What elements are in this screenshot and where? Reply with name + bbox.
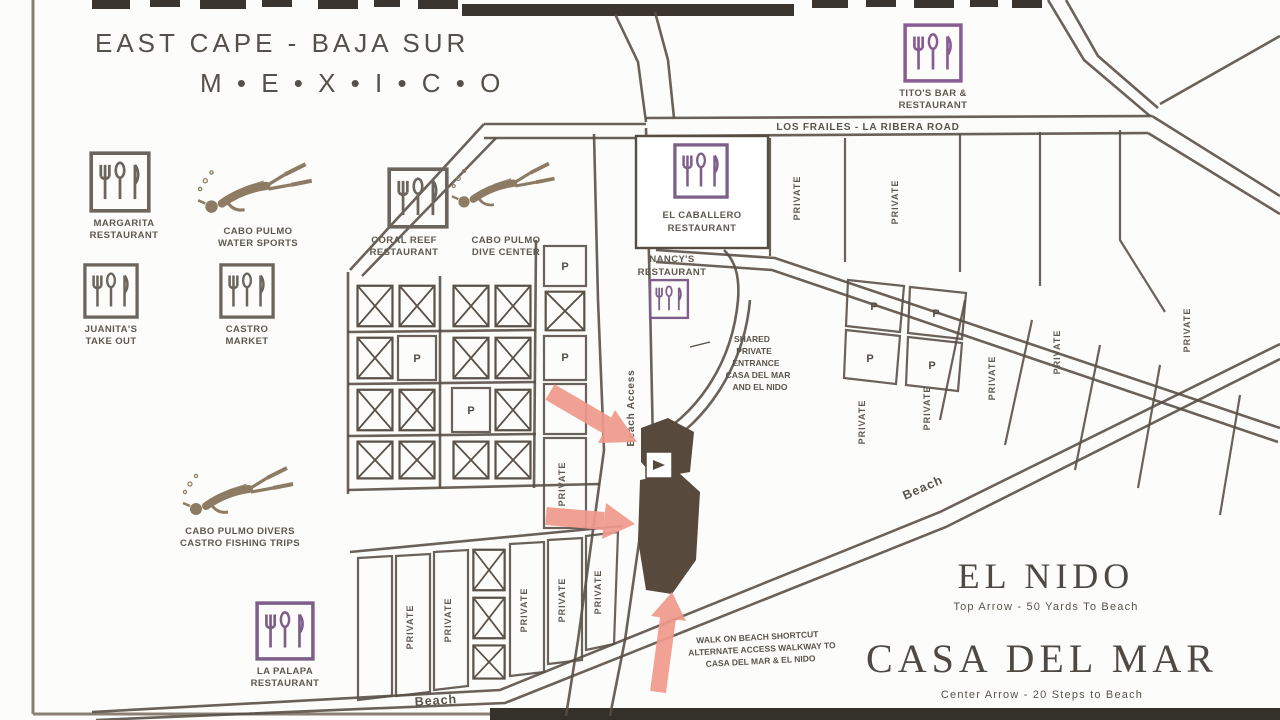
- lot-marker-p: P: [467, 405, 474, 417]
- house-buildings: [638, 418, 700, 594]
- map-title-line1: EAST CAPE - BAJA SUR: [95, 28, 469, 58]
- poi-la-palapa-restaurant: LA PALAPA RESTAURANT: [251, 603, 320, 689]
- poi-label: EL CABALLERO: [662, 210, 741, 221]
- poi-el-caballero-restaurant: EL CABALLERO RESTAURANT: [636, 136, 768, 248]
- lot-label-private: PRIVATE: [557, 462, 567, 507]
- poi-label: RESTAURANT: [638, 267, 707, 278]
- poi-label: CABO PULMO DIVERS: [185, 526, 295, 537]
- lot-marker-p: P: [413, 353, 420, 365]
- lot-block-east: P P P P PRIVATE PRIVATE PRIVATE PRIVATE …: [770, 130, 1240, 515]
- restaurant-icon: [257, 603, 313, 659]
- road-label-los-frailes: LOS FRAILES - LA RIBERA ROAD: [776, 122, 959, 133]
- restaurant-icon-small: [650, 280, 688, 318]
- lot-label-private: PRIVATE: [1052, 330, 1062, 375]
- arrow-center-casa-del-mar: [546, 503, 635, 539]
- poi-margarita-restaurant: MARGARITA RESTAURANT: [90, 153, 159, 241]
- scuba-diver-icon: [198, 164, 312, 213]
- note-line: AND EL NIDO: [732, 382, 787, 392]
- poi-label: RESTAURANT: [90, 230, 159, 241]
- lot-label-private: PRIVATE: [890, 180, 900, 225]
- map-title: EAST CAPE - BAJA SUR M • E • X • I • C •…: [95, 28, 504, 98]
- poi-label: JUANITA'S: [85, 324, 138, 335]
- lot-marker-p: P: [932, 308, 939, 320]
- el-nido-name: EL NIDO: [958, 556, 1135, 596]
- el-nido-label-block: EL NIDO Top Arrow - 50 Yards To Beach: [953, 556, 1138, 613]
- poi-label: TAKE OUT: [85, 336, 136, 347]
- note-line: SHARED: [734, 334, 770, 344]
- restaurant-icon: [905, 25, 961, 81]
- lot-label-private: PRIVATE: [557, 578, 567, 623]
- cutoff-title-art: [92, 0, 1042, 16]
- poi-label: CASTRO: [226, 324, 269, 335]
- poi-label: CASTRO FISHING TRIPS: [180, 538, 300, 549]
- lot-marker-p: P: [870, 301, 877, 313]
- poi-label: DIVE CENTER: [472, 247, 540, 258]
- poi-label: CORAL REEF: [371, 235, 437, 246]
- lot-label-private: PRIVATE: [405, 605, 415, 650]
- lot-label-private: PRIVATE: [443, 598, 453, 643]
- east-cape-map: P P P P PRIVATE PRIVATE PRIVATE PRIVATE …: [0, 0, 1280, 720]
- poi-label: MARKET: [225, 336, 268, 347]
- map-title-line2: M • E • X • I • C • O: [200, 68, 504, 98]
- road-label-beach-bottom: Beach: [414, 692, 457, 709]
- note-line: CASA DEL MAR: [726, 370, 791, 380]
- market-icon: [221, 265, 273, 317]
- poi-label: RESTAURANT: [668, 223, 737, 234]
- lot-label-private: PRIVATE: [792, 176, 802, 221]
- note-line: PRIVATE: [736, 346, 772, 356]
- poi-label: MARGARITA: [94, 218, 155, 229]
- lot-marker-p: P: [561, 352, 568, 364]
- restaurant-icon: [91, 153, 149, 211]
- poi-label: RESTAURANT: [251, 678, 320, 689]
- lot-label-private: PRIVATE: [1182, 308, 1192, 353]
- restaurant-icon: [85, 265, 137, 317]
- lot-label-private: PRIVATE: [519, 588, 529, 633]
- poi-coral-reef-restaurant: CORAL REEF RESTAURANT: [370, 169, 447, 258]
- note-shared-driveway: SHARED PRIVATE ENTRANCE CASA DEL MAR AND…: [690, 334, 790, 392]
- poi-label: WATER SPORTS: [218, 238, 298, 249]
- el-nido-subtitle: Top Arrow - 50 Yards To Beach: [953, 601, 1138, 613]
- casa-del-mar-subtitle: Center Arrow - 20 Steps to Beach: [941, 689, 1143, 701]
- poi-titos-bar-restaurant: TITO'S BAR & RESTAURANT: [899, 25, 968, 111]
- note-beach-walk: WALK ON BEACH SHORTCUT ALTERNATE ACCESS …: [687, 628, 836, 670]
- note-line: ENTRANCE: [732, 358, 780, 368]
- lot-marker-p: P: [866, 353, 873, 365]
- scuba-diver-icon: [183, 468, 293, 515]
- casa-del-mar-name: CASA DEL MAR: [866, 636, 1218, 681]
- road-label-beach-right: Beach: [901, 473, 946, 503]
- arrow-top-el-nido: [550, 392, 637, 443]
- lot-marker-p: P: [561, 261, 568, 273]
- poi-label: RESTAURANT: [370, 247, 439, 258]
- poi-label: NANCY'S: [649, 254, 694, 265]
- poi-castro-market: CASTRO MARKET: [221, 265, 273, 347]
- lot-marker-p: P: [928, 360, 935, 372]
- poi-label: CABO PULMO: [472, 235, 541, 246]
- lot-label-private: PRIVATE: [922, 386, 932, 431]
- lot-label-private: PRIVATE: [987, 356, 997, 401]
- casa-del-mar-label-block: CASA DEL MAR Center Arrow - 20 Steps to …: [866, 636, 1218, 701]
- poi-label: RESTAURANT: [899, 100, 968, 111]
- poi-label: CABO PULMO: [224, 226, 293, 237]
- poi-label: LA PALAPA: [257, 666, 313, 677]
- poi-cabo-pulmo-dive-center: CABO PULMO DIVE CENTER: [452, 164, 555, 258]
- scuba-diver-icon: [452, 164, 555, 208]
- poi-cabo-pulmo-water-sports: CABO PULMO WATER SPORTS: [198, 164, 312, 249]
- casa-del-mar-building: [638, 472, 700, 594]
- lot-label-private: PRIVATE: [593, 570, 603, 615]
- poi-cabo-pulmo-divers-fishing: CABO PULMO DIVERS CASTRO FISHING TRIPS: [180, 468, 300, 549]
- poi-juanitas-take-out: JUANITA'S TAKE OUT: [85, 265, 138, 347]
- poi-label: TITO'S BAR &: [899, 88, 967, 99]
- lot-label-private: PRIVATE: [857, 400, 867, 445]
